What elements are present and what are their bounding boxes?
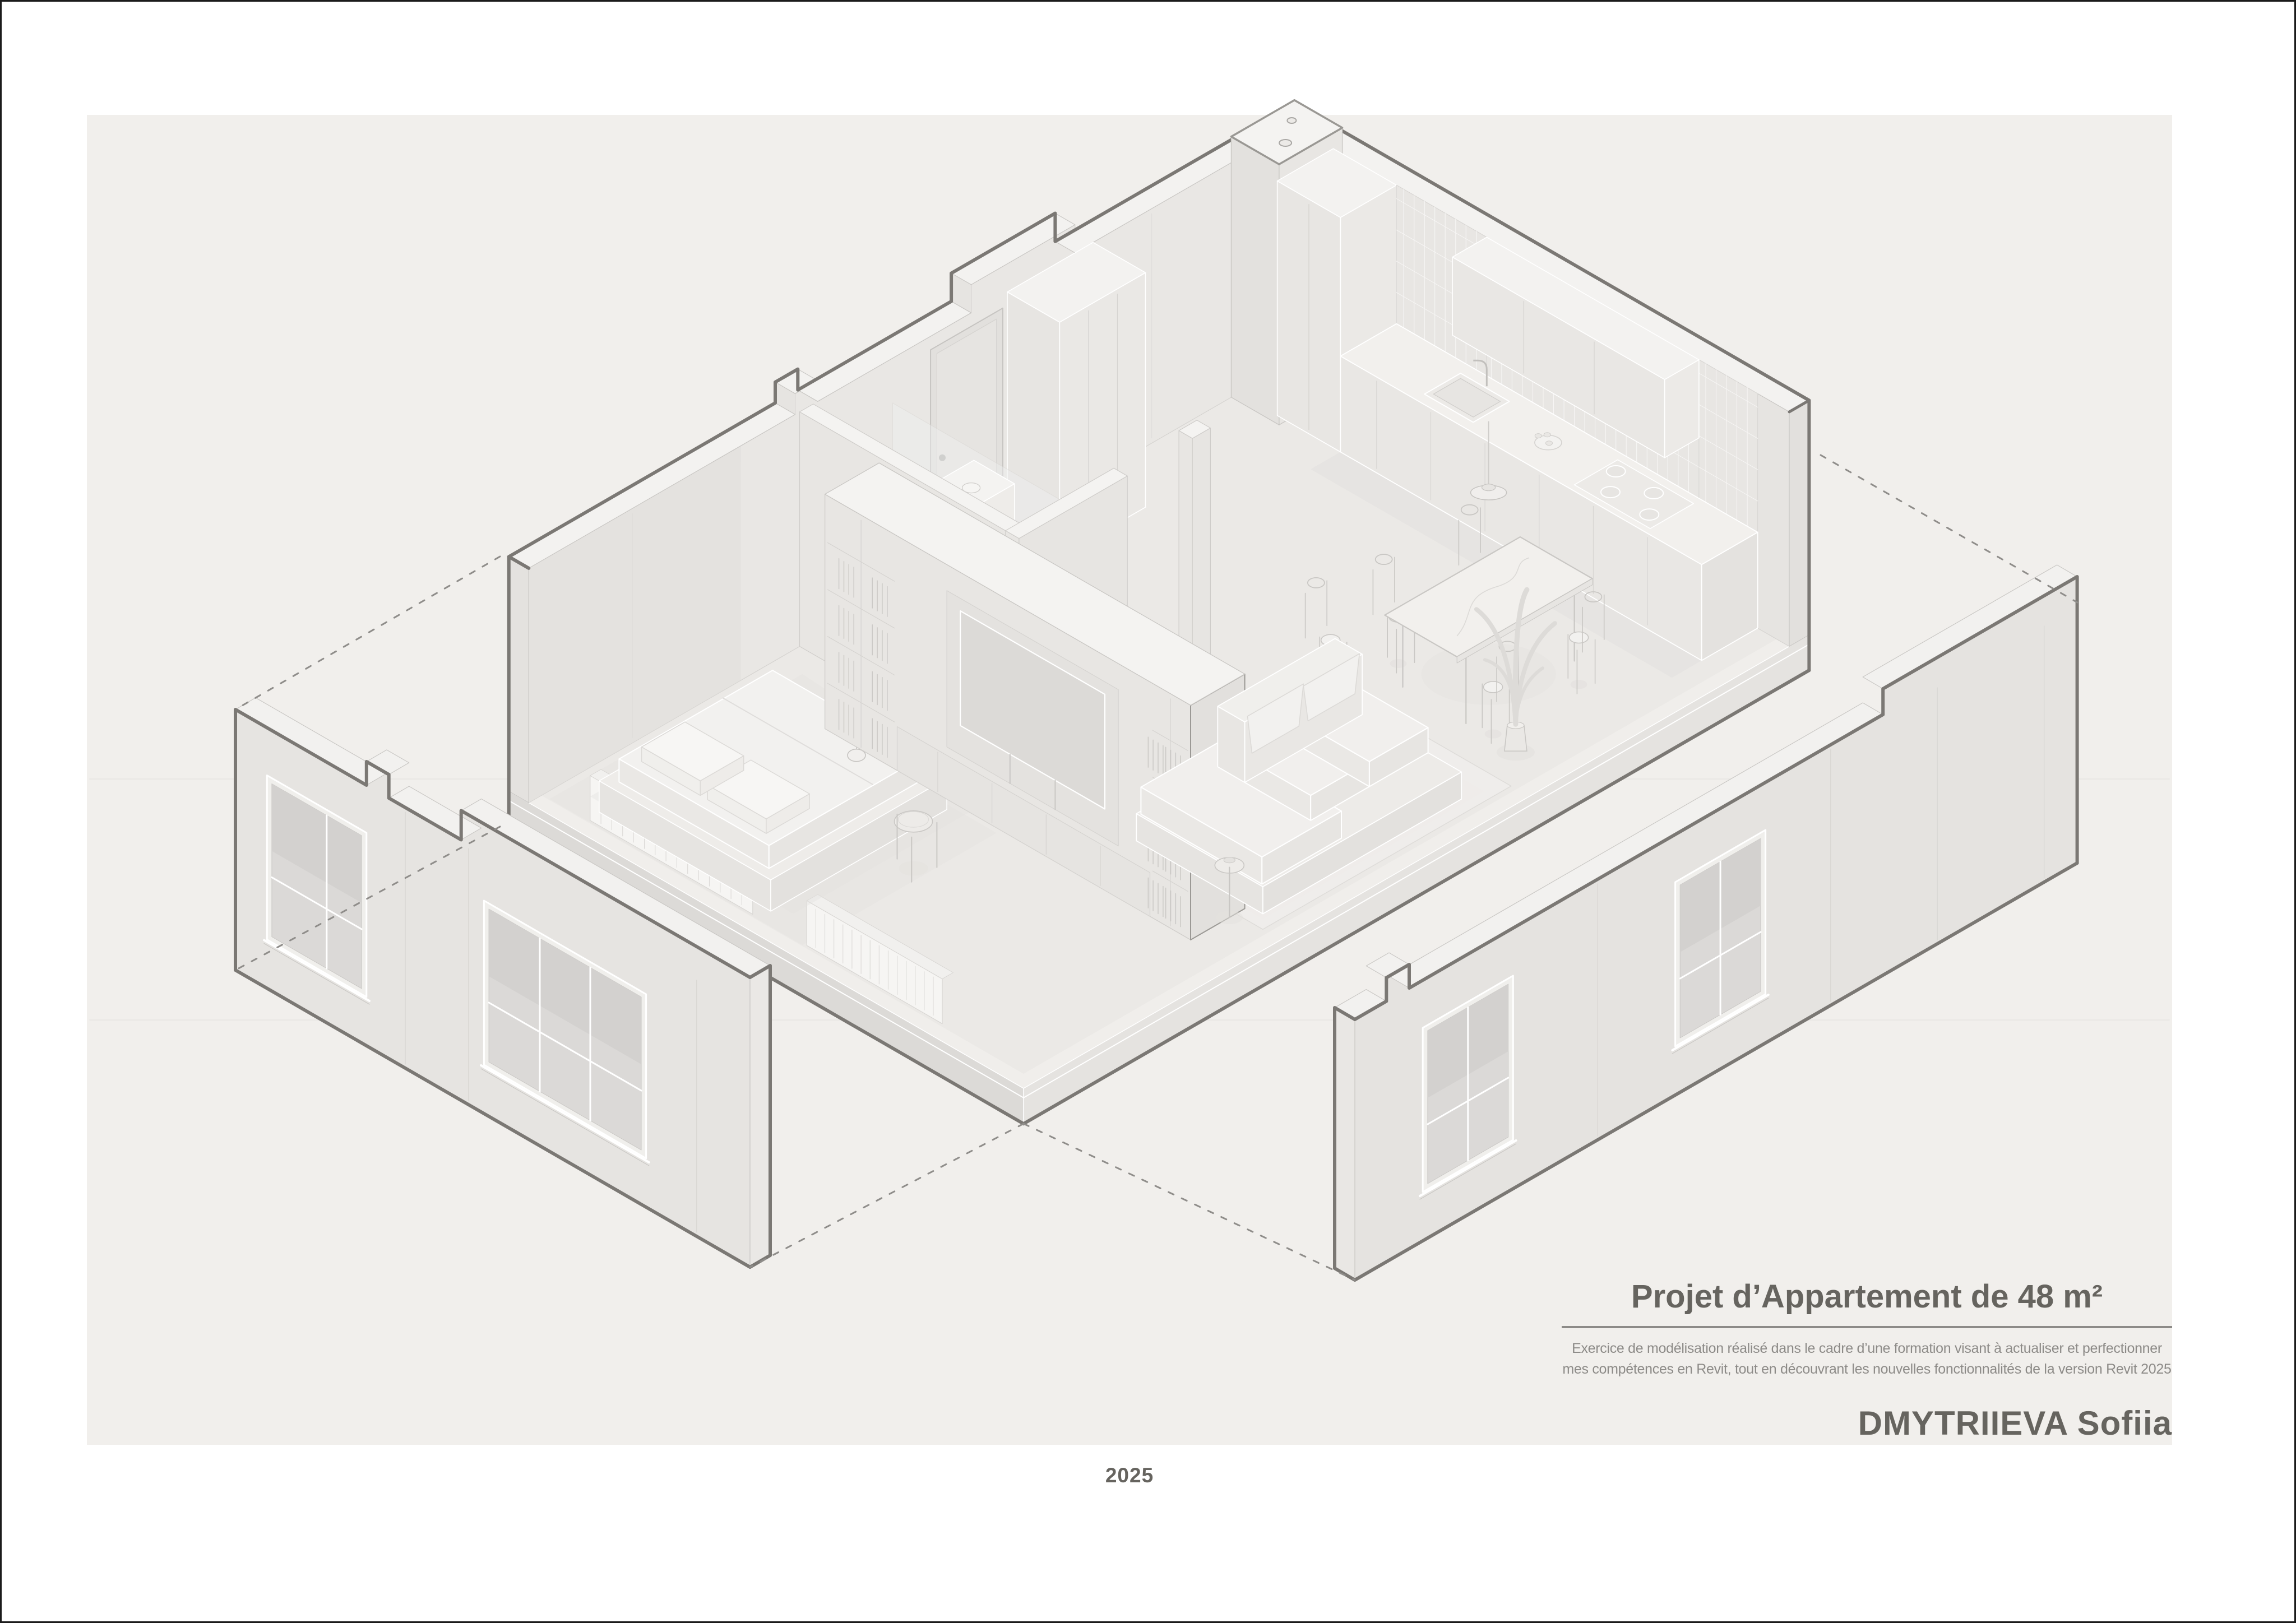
title-block: Projet d’Appartement de 48 m² Exercice d… <box>1562 1279 2172 1443</box>
description-line-2: mes compétences en Revit, tout en découv… <box>1562 1361 2171 1377</box>
title-divider <box>1562 1326 2172 1328</box>
author-name: DMYTRIIEVA Sofiia <box>1562 1404 2172 1443</box>
description-line-1: Exercice de modélisation réalisé dans le… <box>1572 1341 2162 1356</box>
project-title: Projet d’Appartement de 48 m² <box>1562 1279 2172 1315</box>
year-label: 2025 <box>87 1464 2172 1487</box>
project-description: Exercice de modélisation réalisé dans le… <box>1562 1338 2172 1380</box>
presentation-board-page: Projet d’Appartement de 48 m² Exercice d… <box>0 0 2296 1623</box>
